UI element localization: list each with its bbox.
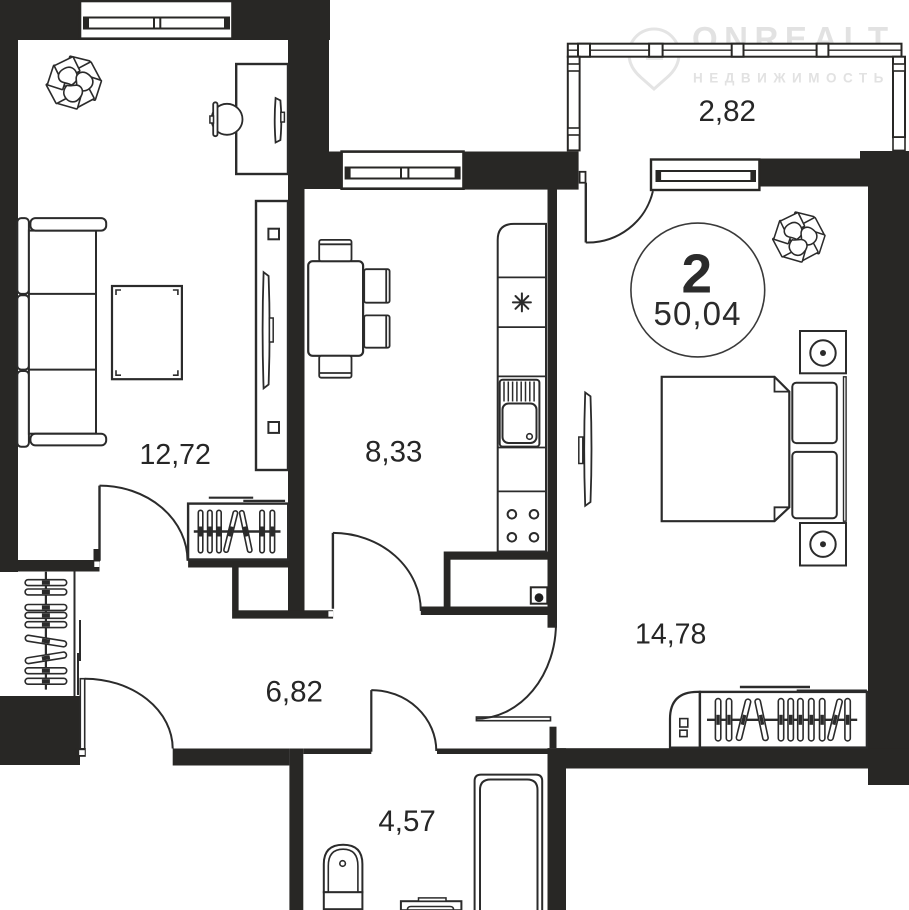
svg-text:14,78: 14,78 bbox=[635, 619, 706, 651]
svg-text:2,82: 2,82 bbox=[699, 95, 756, 128]
svg-text:50,04: 50,04 bbox=[654, 295, 742, 332]
svg-text:6,82: 6,82 bbox=[266, 676, 323, 709]
svg-text:8,33: 8,33 bbox=[365, 436, 422, 469]
svg-text:НЕДВИЖИМОСТЬ: НЕДВИЖИМОСТЬ bbox=[693, 71, 890, 86]
svg-text:12,72: 12,72 bbox=[140, 439, 211, 471]
svg-text:4,57: 4,57 bbox=[378, 805, 435, 838]
